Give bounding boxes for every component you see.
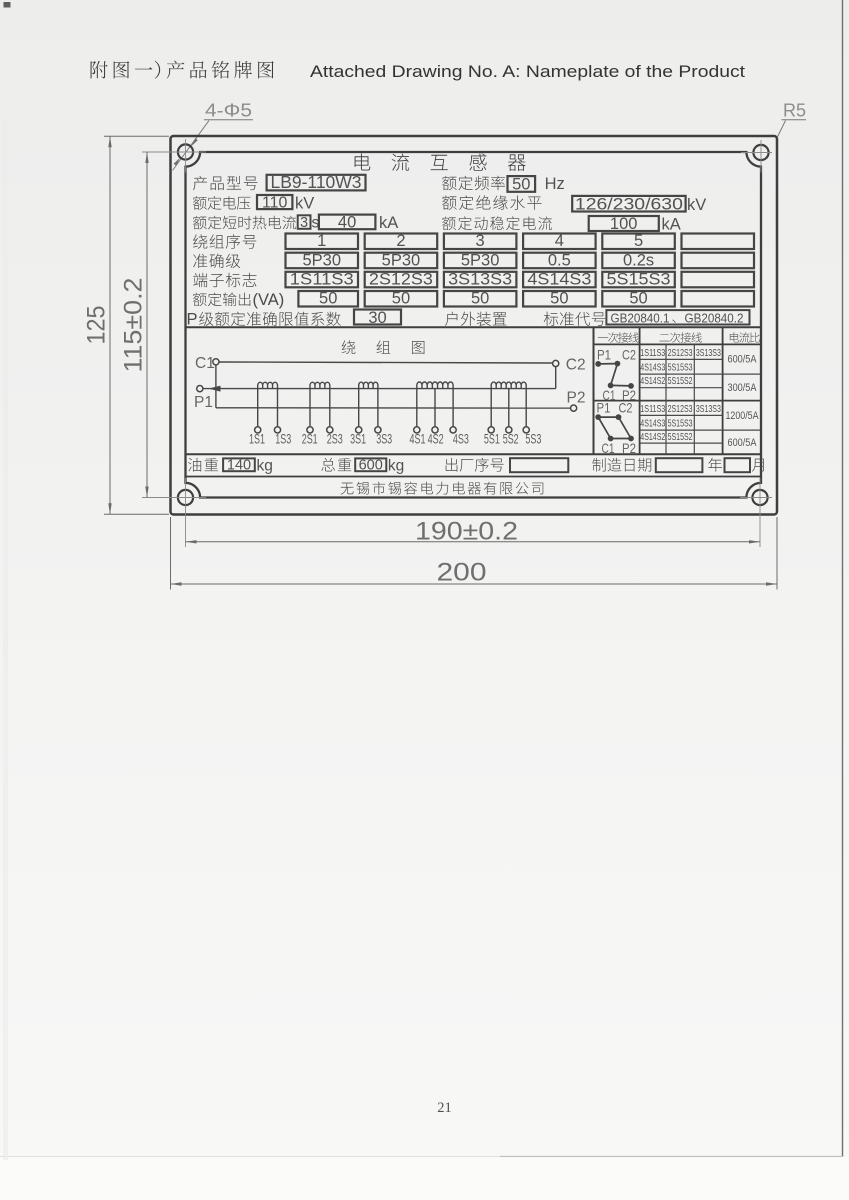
svg-text:GB20840.2: GB20840.2	[685, 310, 744, 325]
svg-text:1S11S3: 1S11S3	[640, 403, 665, 415]
svg-text:30: 30	[368, 309, 386, 327]
svg-text:1S11S3: 1S11S3	[290, 270, 354, 289]
svg-text:600/5A: 600/5A	[728, 354, 758, 366]
svg-text:5S15S3: 5S15S3	[607, 270, 671, 289]
svg-text:4S14S3: 4S14S3	[640, 418, 665, 430]
svg-text:P1: P1	[194, 394, 213, 411]
svg-text:0.2s: 0.2s	[623, 251, 654, 269]
svg-text:P2: P2	[567, 390, 586, 407]
svg-text:4-Φ5: 4-Φ5	[205, 101, 252, 121]
svg-text:5S15S3: 5S15S3	[668, 362, 693, 374]
svg-text:kg: kg	[257, 458, 273, 475]
svg-text:kV: kV	[295, 195, 314, 213]
svg-text:21: 21	[437, 1100, 452, 1116]
svg-text:5S2: 5S2	[503, 432, 519, 447]
svg-text:126/230/630: 126/230/630	[575, 194, 683, 213]
svg-text:2S12S3: 2S12S3	[668, 403, 693, 415]
svg-text:3S3: 3S3	[376, 432, 392, 447]
svg-text:5S1: 5S1	[484, 432, 500, 447]
svg-text:Hz: Hz	[545, 175, 565, 193]
svg-text:C1: C1	[602, 440, 615, 456]
svg-text:P2: P2	[622, 440, 636, 456]
svg-text:C1: C1	[195, 355, 215, 372]
svg-text:Attached Drawing No. A: Namepl: Attached Drawing No. A: Nameplate of the…	[310, 62, 745, 81]
svg-text:P1: P1	[597, 346, 611, 362]
svg-text:50: 50	[471, 290, 489, 308]
svg-text:LB9-110W3: LB9-110W3	[271, 172, 362, 192]
svg-text:100: 100	[610, 215, 638, 233]
svg-text:300/5A: 300/5A	[728, 382, 758, 394]
svg-text:5P30: 5P30	[461, 251, 500, 269]
svg-text:140: 140	[227, 458, 251, 474]
svg-text:2S3: 2S3	[327, 432, 343, 447]
svg-text:5S15S2: 5S15S2	[668, 431, 693, 443]
svg-text:5S15S2: 5S15S2	[668, 375, 693, 387]
svg-text:4S14S2: 4S14S2	[640, 431, 665, 443]
svg-text:C2: C2	[619, 399, 633, 415]
svg-text:3S13S3: 3S13S3	[696, 403, 721, 415]
svg-text:1S3: 1S3	[275, 432, 291, 447]
svg-text:600/5A: 600/5A	[728, 437, 758, 449]
svg-text:1S11S3: 1S11S3	[640, 347, 665, 359]
svg-text:50: 50	[512, 175, 530, 193]
svg-text:5S3: 5S3	[525, 432, 541, 447]
svg-text:1: 1	[317, 232, 326, 250]
svg-text:4S14S3: 4S14S3	[527, 270, 591, 289]
svg-text:4S3: 4S3	[453, 432, 469, 447]
svg-text:190±0.2: 190±0.2	[415, 518, 518, 546]
svg-text:4S1: 4S1	[410, 432, 426, 447]
svg-text:115±0.2: 115±0.2	[120, 278, 148, 373]
svg-text:2S12S3: 2S12S3	[369, 270, 433, 289]
svg-text:3: 3	[476, 232, 485, 250]
svg-text:50: 50	[319, 290, 337, 308]
svg-text:4S14S3: 4S14S3	[640, 362, 665, 374]
svg-text:(VA): (VA)	[253, 291, 285, 309]
svg-text:5S15S3: 5S15S3	[668, 418, 693, 430]
svg-text:50: 50	[629, 290, 647, 308]
svg-text:3S13S3: 3S13S3	[696, 347, 721, 359]
svg-text:3S1: 3S1	[350, 432, 366, 447]
svg-text:kg: kg	[388, 458, 404, 475]
svg-text:C2: C2	[566, 357, 586, 374]
svg-text:GB20840.1: GB20840.1	[611, 310, 670, 325]
svg-text:P: P	[187, 311, 198, 329]
svg-text:4S2: 4S2	[428, 432, 444, 447]
svg-text:1200/5A: 1200/5A	[726, 410, 760, 422]
svg-text:3: 3	[300, 215, 308, 231]
svg-text:5P30: 5P30	[302, 251, 341, 269]
svg-text:C2: C2	[622, 346, 636, 362]
svg-text:50: 50	[392, 290, 410, 308]
svg-text:600: 600	[359, 458, 383, 474]
svg-text:kA: kA	[379, 214, 398, 232]
svg-text:kA: kA	[662, 216, 681, 234]
svg-text:P1: P1	[597, 399, 611, 415]
svg-text:50: 50	[550, 290, 568, 308]
svg-text:110: 110	[262, 194, 288, 211]
svg-text:125: 125	[83, 306, 111, 345]
svg-text:5P30: 5P30	[382, 251, 421, 269]
svg-text:R5: R5	[783, 101, 806, 121]
svg-text:2: 2	[396, 232, 405, 250]
svg-text:4S14S2: 4S14S2	[640, 375, 665, 387]
svg-text:4: 4	[555, 232, 564, 250]
svg-text:5: 5	[634, 232, 643, 250]
svg-text:2S1: 2S1	[302, 432, 318, 447]
svg-text:kV: kV	[687, 196, 706, 214]
svg-text:2S12S3: 2S12S3	[668, 347, 693, 359]
svg-text:40: 40	[338, 213, 356, 231]
svg-text:3S13S3: 3S13S3	[448, 270, 512, 289]
svg-text:1S1: 1S1	[249, 432, 265, 447]
svg-text:0.5: 0.5	[548, 251, 571, 269]
svg-text:200: 200	[437, 559, 487, 587]
